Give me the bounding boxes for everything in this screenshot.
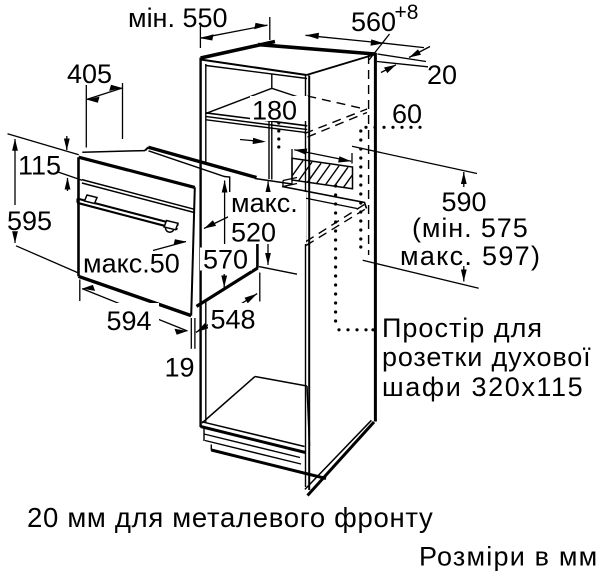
svg-text:Розміри в мм: Розміри в мм xyxy=(419,542,598,572)
svg-text:шафи 320x115: шафи 320x115 xyxy=(382,372,584,402)
svg-text:макс.: макс. xyxy=(231,188,298,218)
svg-text:60: 60 xyxy=(392,99,422,129)
svg-text:405: 405 xyxy=(67,59,112,89)
svg-text:19: 19 xyxy=(165,353,195,383)
svg-text:20 мм для металевого фронту: 20 мм для металевого фронту xyxy=(27,502,433,533)
svg-text:560: 560 xyxy=(351,7,396,37)
svg-text:594: 594 xyxy=(107,306,152,336)
svg-text:Простір для: Простір для xyxy=(382,313,543,343)
svg-text:595: 595 xyxy=(7,206,52,236)
svg-text:115: 115 xyxy=(18,151,61,181)
svg-text:548: 548 xyxy=(211,305,256,335)
svg-text:(мін. 575: (мін. 575 xyxy=(412,213,529,243)
svg-text:20: 20 xyxy=(427,60,457,90)
svg-text:розетки духової: розетки духової xyxy=(382,342,591,372)
svg-text:180: 180 xyxy=(252,96,297,126)
svg-text:+8: +8 xyxy=(395,1,419,24)
svg-text:570: 570 xyxy=(203,245,248,275)
svg-text:мін. 550: мін. 550 xyxy=(128,3,228,33)
svg-text:макс.50: макс.50 xyxy=(83,249,180,279)
svg-text:520: 520 xyxy=(231,218,276,248)
svg-text:макс. 597): макс. 597) xyxy=(400,241,541,271)
